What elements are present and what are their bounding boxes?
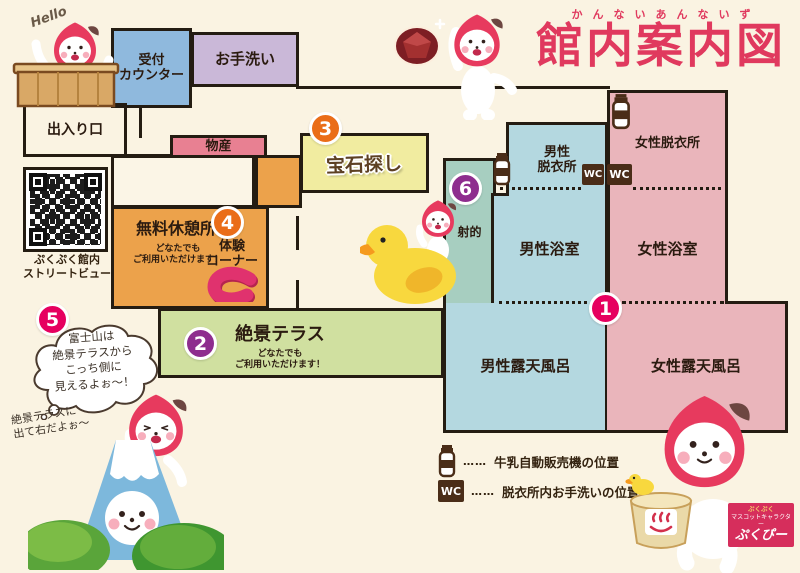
room-reception: 受付 カウンター	[111, 28, 192, 108]
wall-segment	[725, 301, 788, 304]
wc-badge-womens-label: WC	[609, 168, 629, 181]
wall-segment	[491, 193, 509, 196]
badge-4-number: 4	[221, 212, 234, 234]
badge-6: 6	[449, 172, 482, 205]
room-mens-open-air-bath: 男性露天風呂	[443, 303, 608, 433]
milk-vending-icon	[611, 93, 631, 130]
qr-code	[23, 167, 108, 252]
room-womens-bath-label: 女性浴室	[637, 241, 697, 259]
room-rest-area-annex	[255, 155, 302, 208]
qr-finder	[29, 173, 47, 191]
wall-segment	[139, 106, 142, 138]
dotted-divider	[499, 301, 587, 304]
mascot-tag-name: ぷくぴー	[730, 528, 792, 544]
room-mens-bath-label: 男性浴室	[519, 241, 579, 259]
room-mens-dressing-label: 男性 脱衣所	[537, 145, 576, 176]
badge-2-number: 2	[194, 333, 207, 355]
room-entrance-label: 出入り口	[47, 122, 103, 139]
dotted-divider	[633, 187, 721, 190]
badge-5: 5	[36, 303, 69, 336]
legend: …… 牛乳自動販売機の位置 WC …… 脱衣所内お手洗いの位置	[438, 444, 640, 504]
wc-badge-legend: WC	[438, 480, 464, 502]
room-mens-open-air-bath-label: 男性露天風呂	[480, 358, 570, 376]
room-products-label: 物産	[205, 139, 231, 154]
wall-segment	[296, 216, 299, 250]
room-gem-hunting-label: 宝石探し	[326, 148, 403, 178]
badge-2: 2	[184, 327, 217, 360]
wall-segment	[124, 154, 172, 157]
room-womens-dressing-label: 女性脱衣所	[635, 136, 700, 151]
corridor-room	[111, 155, 255, 208]
room-rest-area: 無料休憩所 どなたでも ご利用いただけます！ 体験 コーナー	[111, 206, 269, 309]
room-mens-bath: 男性浴室	[491, 195, 608, 305]
duck-mascot-icon	[360, 198, 474, 308]
badge-1-number: 1	[599, 298, 612, 320]
room-entrance: 出入り口	[23, 103, 127, 157]
wc-badge-mens: WC	[582, 164, 604, 185]
qr-caption: ぷくぷく館内 ストリートビュー	[8, 253, 126, 282]
badge-5-number: 5	[46, 309, 59, 331]
room-womens-open-air-bath-label: 女性露天風呂	[651, 358, 741, 376]
badge-3-number: 3	[319, 118, 332, 140]
badge-6-number: 6	[459, 178, 472, 200]
qr-finder	[29, 228, 47, 246]
legend-dots: ……	[463, 455, 487, 468]
mascot-tag-brand: ぷくぷく	[730, 506, 792, 514]
badge-1: 1	[589, 292, 622, 325]
title-main: 館内案内図	[528, 22, 794, 71]
mascot-gem-icon	[390, 8, 528, 120]
gem-icon	[395, 20, 444, 65]
page-title: かんないあんないず 館内案内図	[528, 6, 794, 71]
badge-3: 3	[309, 112, 342, 145]
dotted-divider	[493, 187, 581, 190]
room-womens-bath: 女性浴室	[607, 195, 728, 305]
duck-small-icon	[625, 474, 654, 495]
bath-bucket-icon	[625, 474, 691, 548]
wc-badge-legend-label: WC	[441, 485, 461, 498]
mascot-tag-role: マスコットキャラクター	[730, 514, 792, 528]
badge-4: 4	[211, 206, 244, 239]
mascot-name-tag: ぷくぷく マスコットキャラクター ぷくぴー	[728, 503, 794, 547]
qr-finder	[84, 173, 102, 191]
room-restroom: お手洗い	[191, 32, 299, 87]
legend-wc-row: WC …… 脱衣所内お手洗いの位置	[438, 478, 640, 504]
room-restroom-label: お手洗い	[215, 51, 275, 69]
room-reception-label: 受付 カウンター	[119, 53, 184, 84]
legend-dots: ……	[471, 485, 495, 498]
mascot-greeter-icon	[12, 14, 120, 109]
dotted-divider	[622, 301, 724, 304]
experience-squiggle-icon	[204, 266, 262, 302]
milk-vending-icon	[493, 152, 511, 186]
wc-badge-womens: WC	[607, 164, 632, 185]
wall-segment	[296, 280, 299, 308]
milk-vending-icon	[438, 444, 456, 478]
facility-map: かんないあんないず 館内案内図 受付 カウンター お手洗い 出入り口 物産 無料…	[0, 0, 800, 573]
legend-milk-text: 牛乳自動販売機の位置	[494, 452, 619, 471]
legend-milk-row: …… 牛乳自動販売機の位置	[438, 444, 640, 478]
speech-bubble-text: 富士山は 絶景テラスから こっち側に 見えるよぉ〜！	[32, 326, 154, 396]
wc-badge-mens-label: WC	[584, 169, 602, 180]
